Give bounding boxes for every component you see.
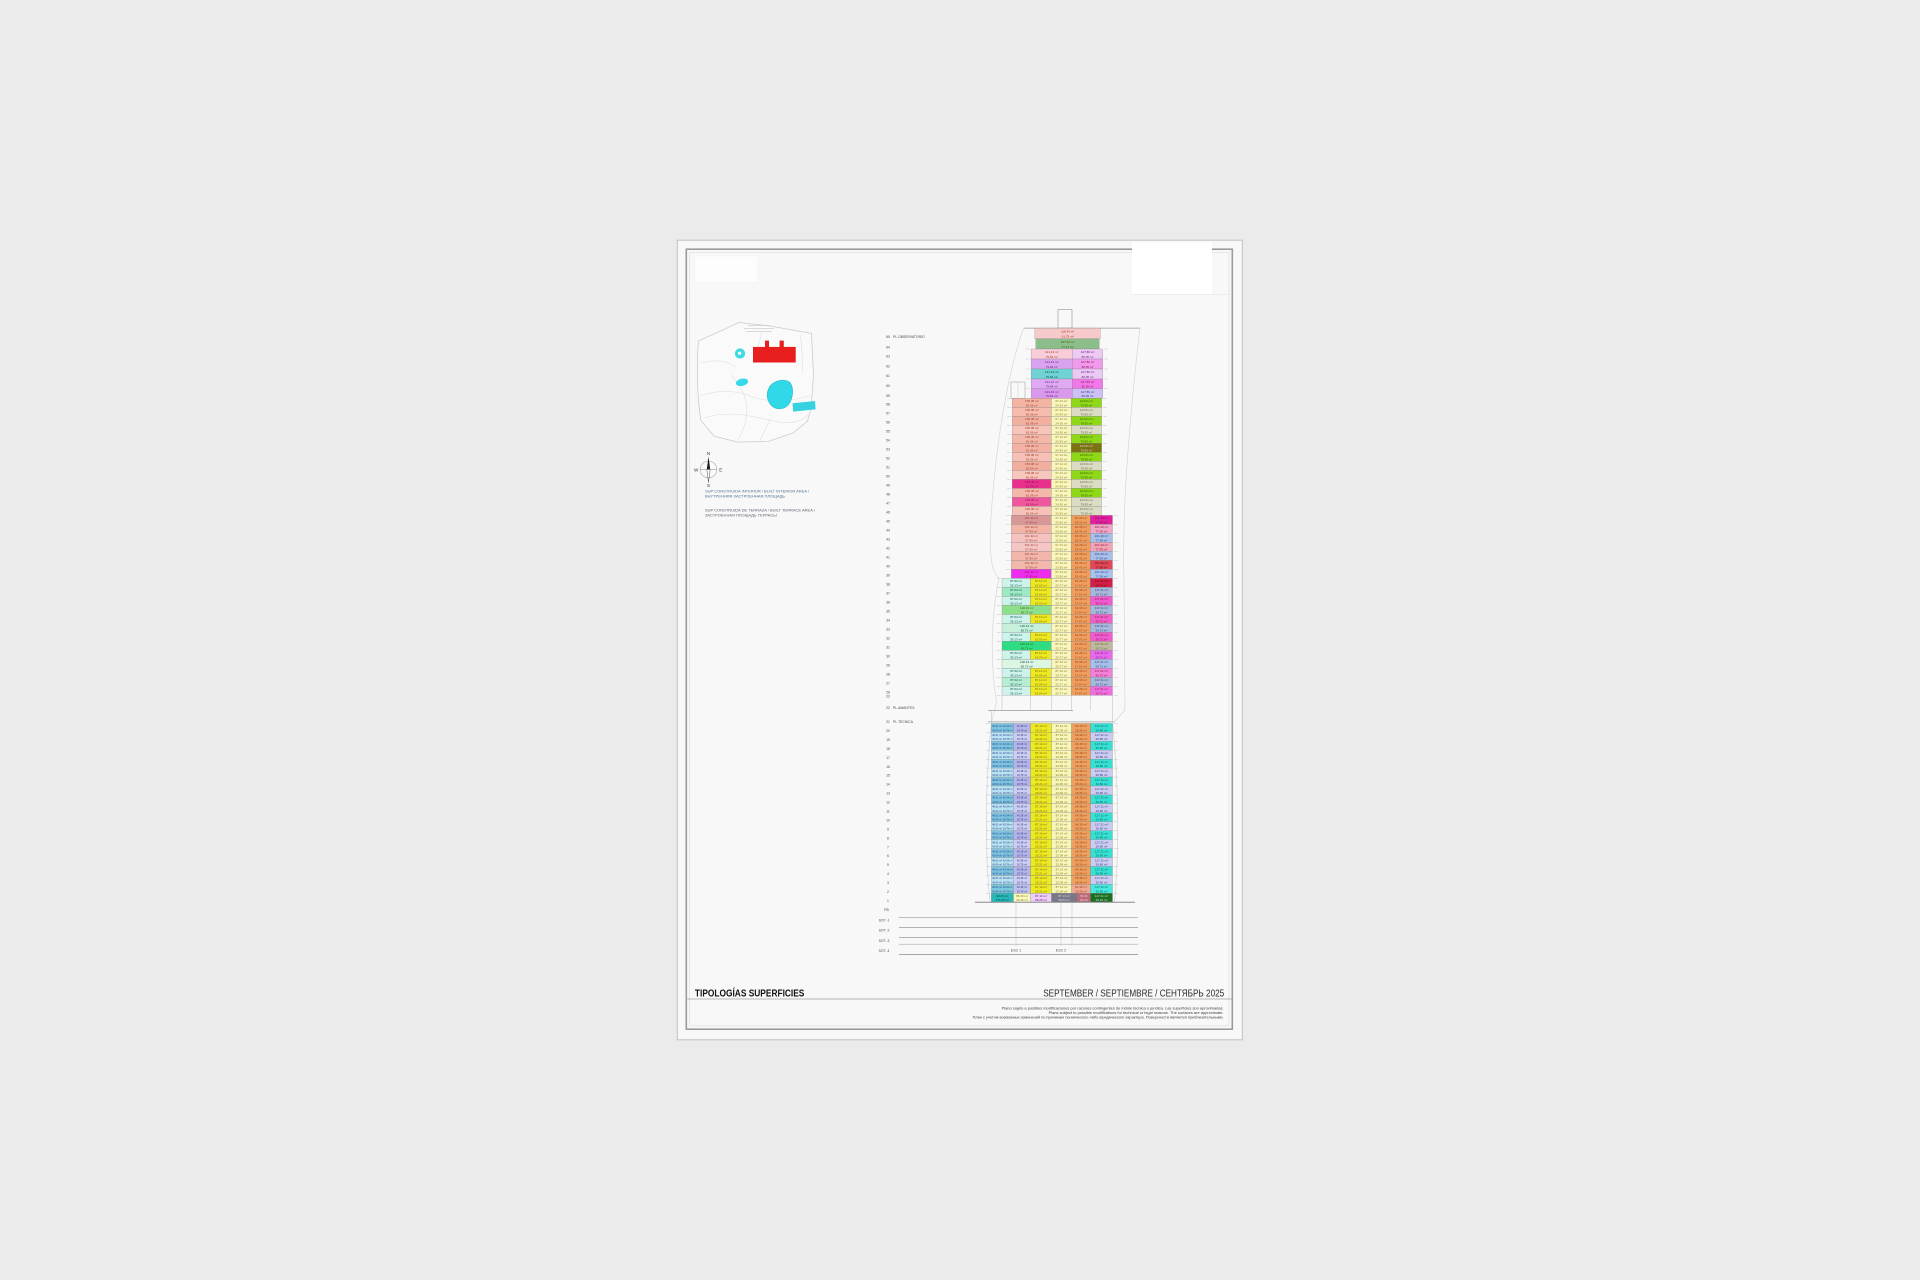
svg-text:121.43 m²: 121.43 m² bbox=[1045, 350, 1059, 354]
svg-text:18.78 m²: 18.78 m² bbox=[1017, 871, 1027, 875]
svg-text:17.67 m²: 17.67 m² bbox=[1075, 673, 1087, 677]
svg-text:55.13 m²: 55.13 m² bbox=[1010, 592, 1022, 596]
svg-text:22.09 m²: 22.09 m² bbox=[1056, 854, 1068, 858]
svg-text:77.99 m²: 77.99 m² bbox=[1095, 556, 1107, 560]
svg-text:46.38 m²: 46.38 m² bbox=[1017, 760, 1027, 764]
svg-text:38: 38 bbox=[886, 582, 890, 586]
svg-text:PL.OBSERVATORIO: PL.OBSERVATORIO bbox=[893, 335, 925, 339]
svg-text:17.67 m²: 17.67 m² bbox=[1075, 628, 1087, 632]
svg-text:79.83 m²: 79.83 m² bbox=[1080, 403, 1092, 407]
svg-text:57.99 m²: 57.99 m² bbox=[1025, 520, 1037, 524]
svg-text:23.21 m²: 23.21 m² bbox=[1035, 782, 1047, 786]
svg-text:18.36 m²: 18.36 m² bbox=[1075, 737, 1087, 741]
svg-text:57: 57 bbox=[886, 411, 890, 415]
svg-text:118.34 m²: 118.34 m² bbox=[1061, 330, 1074, 334]
svg-text:8: 8 bbox=[887, 836, 889, 840]
svg-text:46.38 m²: 46.38 m² bbox=[1017, 885, 1027, 889]
svg-text:29: 29 bbox=[886, 663, 890, 667]
svg-text:23.21 m²: 23.21 m² bbox=[1035, 880, 1047, 884]
svg-text:82.05 m²: 82.05 m² bbox=[1082, 394, 1094, 398]
svg-text:37: 37 bbox=[886, 591, 890, 595]
svg-text:46.61 m² 43.04 m²: 46.61 m² 43.04 m² bbox=[992, 841, 1013, 844]
svg-text:18.36 m²: 18.36 m² bbox=[1075, 836, 1087, 840]
svg-text:26.71 m²: 26.71 m² bbox=[1095, 664, 1107, 668]
svg-text:19.03 m²: 19.03 m² bbox=[1035, 601, 1047, 605]
svg-text:65: 65 bbox=[886, 335, 890, 339]
svg-text:43.04 m² 18.78 m²: 43.04 m² 18.78 m² bbox=[992, 881, 1013, 884]
svg-text:23.21 m²: 23.21 m² bbox=[1035, 737, 1047, 741]
svg-text:79.83 m²: 79.83 m² bbox=[1080, 502, 1092, 506]
svg-text:46.38 m²: 46.38 m² bbox=[1017, 778, 1027, 782]
svg-text:127.86 m²: 127.86 m² bbox=[1081, 390, 1095, 394]
svg-text:18.36 m²: 18.36 m² bbox=[1075, 800, 1087, 804]
svg-text:SOT -2: SOT -2 bbox=[879, 929, 890, 933]
svg-text:26.80 m²: 26.80 m² bbox=[1096, 880, 1108, 884]
svg-text:127.86 m²: 127.86 m² bbox=[1081, 370, 1095, 374]
svg-text:25.77 m²: 25.77 m² bbox=[1055, 592, 1067, 596]
svg-text:79.84 m²: 79.84 m² bbox=[1046, 394, 1058, 398]
svg-text:18.78 m²: 18.78 m² bbox=[1017, 854, 1027, 858]
svg-text:60.72 m²: 60.72 m² bbox=[1021, 646, 1033, 650]
svg-text:18.36 m²: 18.36 m² bbox=[1075, 791, 1087, 795]
svg-text:25.77 m²: 25.77 m² bbox=[1055, 673, 1067, 677]
svg-text:24.36 m²: 24.36 m² bbox=[1055, 439, 1067, 443]
svg-text:23.06 m²: 23.06 m² bbox=[1055, 529, 1067, 533]
svg-text:24.36 m²: 24.36 m² bbox=[1055, 403, 1067, 407]
svg-text:26.71 m²: 26.71 m² bbox=[1095, 610, 1107, 614]
svg-text:18.36 m²: 18.36 m² bbox=[1075, 854, 1087, 858]
svg-text:127.86 m²: 127.86 m² bbox=[1081, 360, 1095, 364]
svg-text:171.05 m²: 171.05 m² bbox=[996, 898, 1010, 902]
svg-text:46.38 m²: 46.38 m² bbox=[1017, 840, 1027, 844]
svg-text:26.80 m²: 26.80 m² bbox=[1096, 764, 1108, 768]
svg-text:64: 64 bbox=[886, 346, 890, 350]
svg-text:18.78 m²: 18.78 m² bbox=[1017, 773, 1027, 777]
svg-text:17.67 m²: 17.67 m² bbox=[1075, 637, 1087, 641]
svg-text:19.03 m²: 19.03 m² bbox=[1035, 682, 1047, 686]
svg-text:26.10 m²: 26.10 m² bbox=[1096, 898, 1108, 902]
svg-text:81.06 m²: 81.06 m² bbox=[1026, 466, 1038, 470]
svg-text:77.99 m²: 77.99 m² bbox=[1095, 574, 1107, 578]
svg-text:18.78 m²: 18.78 m² bbox=[1017, 818, 1027, 822]
svg-text:43.04 m² 18.78 m²: 43.04 m² 18.78 m² bbox=[992, 837, 1013, 840]
svg-text:34: 34 bbox=[886, 618, 890, 622]
svg-text:23.21 m²: 23.21 m² bbox=[1035, 809, 1047, 813]
svg-text:22.09 m²: 22.09 m² bbox=[1056, 818, 1068, 822]
svg-text:18.36 m²: 18.36 m² bbox=[1075, 728, 1087, 732]
svg-text:26.80 m²: 26.80 m² bbox=[1096, 854, 1108, 858]
svg-text:61.75 m²: 61.75 m² bbox=[1062, 335, 1074, 339]
svg-text:57.99 m²: 57.99 m² bbox=[1025, 547, 1037, 551]
svg-text:43.04 m² 18.78 m²: 43.04 m² 18.78 m² bbox=[992, 819, 1013, 822]
svg-text:23.21 m²: 23.21 m² bbox=[1035, 746, 1047, 750]
svg-text:27: 27 bbox=[886, 681, 890, 685]
svg-text:18.41 m²: 18.41 m² bbox=[1075, 556, 1087, 560]
svg-text:26.71 m²: 26.71 m² bbox=[1095, 583, 1107, 587]
svg-text:12: 12 bbox=[886, 801, 890, 805]
svg-text:25.77 m²: 25.77 m² bbox=[1055, 637, 1067, 641]
svg-text:22.09 m²: 22.09 m² bbox=[1056, 836, 1068, 840]
svg-text:23.21 m²: 23.21 m² bbox=[1035, 764, 1047, 768]
svg-text:9: 9 bbox=[887, 827, 889, 831]
svg-text:57.99 m²: 57.99 m² bbox=[1025, 529, 1037, 533]
svg-text:23.21 m²: 23.21 m² bbox=[1035, 889, 1047, 893]
svg-text:50: 50 bbox=[886, 474, 890, 478]
svg-text:55.13 m²: 55.13 m² bbox=[1010, 601, 1022, 605]
svg-text:18.36 m²: 18.36 m² bbox=[1075, 845, 1087, 849]
svg-text:81.06 m²: 81.06 m² bbox=[1026, 457, 1038, 461]
svg-text:18: 18 bbox=[886, 747, 890, 751]
svg-text:63: 63 bbox=[886, 355, 890, 359]
svg-text:18.36 m²: 18.36 m² bbox=[1075, 827, 1087, 831]
svg-text:23.21 m²: 23.21 m² bbox=[1035, 728, 1047, 732]
svg-text:43: 43 bbox=[886, 537, 890, 541]
svg-text:18.36 m²: 18.36 m² bbox=[1075, 818, 1087, 822]
svg-text:19.03 m²: 19.03 m² bbox=[1035, 655, 1047, 659]
svg-text:TIPOLOGÍAS SUPERFICIES: TIPOLOGÍAS SUPERFICIES bbox=[695, 986, 805, 999]
svg-text:43.04 m² 18.78 m²: 43.04 m² 18.78 m² bbox=[992, 872, 1013, 875]
svg-text:26.80 m²: 26.80 m² bbox=[1096, 800, 1108, 804]
svg-text:43.04 m² 18.78 m²: 43.04 m² 18.78 m² bbox=[992, 792, 1013, 795]
svg-text:18.41 m²: 18.41 m² bbox=[1075, 538, 1087, 542]
svg-text:23: 23 bbox=[886, 694, 890, 698]
svg-text:32: 32 bbox=[886, 636, 890, 640]
svg-text:127.86 m²: 127.86 m² bbox=[1081, 380, 1095, 384]
svg-text:81.06 m²: 81.06 m² bbox=[1026, 475, 1038, 479]
svg-text:23.06 m²: 23.06 m² bbox=[1055, 574, 1067, 578]
svg-text:79.83 m²: 79.83 m² bbox=[1080, 475, 1092, 479]
svg-text:18.41 m²: 18.41 m² bbox=[1075, 520, 1087, 524]
svg-text:60: 60 bbox=[886, 384, 890, 388]
svg-text:58: 58 bbox=[886, 402, 890, 406]
svg-text:43.04 m² 18.78 m²: 43.04 m² 18.78 m² bbox=[992, 828, 1013, 831]
svg-text:46.61 m² 43.04 m²: 46.61 m² 43.04 m² bbox=[992, 824, 1013, 827]
svg-text:19.03 m²: 19.03 m² bbox=[1035, 592, 1047, 596]
svg-text:26.71 m²: 26.71 m² bbox=[1095, 601, 1107, 605]
svg-text:82.05 m²: 82.05 m² bbox=[1082, 385, 1094, 389]
svg-text:53: 53 bbox=[886, 447, 890, 451]
svg-text:59: 59 bbox=[886, 394, 890, 398]
svg-text:26.80 m²: 26.80 m² bbox=[1096, 773, 1108, 777]
svg-text:ЗАСТРОЕННАЯ ПЛОЩАДЬ ТЕРРАСЫ: ЗАСТРОЕННАЯ ПЛОЩАДЬ ТЕРРАСЫ bbox=[705, 513, 777, 518]
svg-text:23.21 m²: 23.21 m² bbox=[1035, 827, 1047, 831]
svg-text:237.54 m²: 237.54 m² bbox=[1061, 340, 1075, 344]
svg-text:4: 4 bbox=[887, 872, 889, 876]
svg-text:PL.AMANTES: PL.AMANTES bbox=[893, 706, 915, 710]
svg-text:26.80 m²: 26.80 m² bbox=[1096, 845, 1108, 849]
svg-text:26.80 m²: 26.80 m² bbox=[1096, 889, 1108, 893]
svg-text:26.80 m²: 26.80 m² bbox=[1096, 836, 1108, 840]
svg-text:25.77 m²: 25.77 m² bbox=[1055, 619, 1067, 623]
svg-text:46.61 m² 43.04 m²: 46.61 m² 43.04 m² bbox=[992, 859, 1013, 862]
svg-text:55: 55 bbox=[886, 429, 890, 433]
svg-text:46.38 m²: 46.38 m² bbox=[1017, 849, 1027, 853]
svg-text:46.38 m²: 46.38 m² bbox=[1017, 805, 1027, 809]
svg-text:24.36 m²: 24.36 m² bbox=[1055, 448, 1067, 452]
svg-text:46.61 m² 43.04 m²: 46.61 m² 43.04 m² bbox=[992, 779, 1013, 782]
svg-text:21: 21 bbox=[886, 720, 890, 724]
svg-text:17.67 m²: 17.67 m² bbox=[1075, 610, 1087, 614]
svg-text:25.77 m²: 25.77 m² bbox=[1055, 646, 1067, 650]
svg-text:18.78 m²: 18.78 m² bbox=[1017, 800, 1027, 804]
svg-text:79.84 m²: 79.84 m² bbox=[1046, 385, 1058, 389]
svg-text:46.38 m²: 46.38 m² bbox=[1017, 796, 1027, 800]
svg-text:23.21 m²: 23.21 m² bbox=[1035, 836, 1047, 840]
svg-text:22.09 m²: 22.09 m² bbox=[1056, 845, 1068, 849]
svg-text:57.99 m²: 57.99 m² bbox=[1025, 538, 1037, 542]
svg-text:19.03 m²: 19.03 m² bbox=[1035, 619, 1047, 623]
svg-text:25.77 m²: 25.77 m² bbox=[1055, 682, 1067, 686]
svg-text:29.40 m²: 29.40 m² bbox=[1016, 898, 1028, 902]
svg-text:46.61 m² 43.04 m²: 46.61 m² 43.04 m² bbox=[992, 877, 1013, 880]
svg-text:22.09 m²: 22.09 m² bbox=[1056, 764, 1068, 768]
svg-text:26.80 m²: 26.80 m² bbox=[1096, 737, 1108, 741]
svg-text:E: E bbox=[719, 468, 722, 473]
svg-text:46.61 m² 43.04 m²: 46.61 m² 43.04 m² bbox=[992, 850, 1013, 853]
svg-text:23.06 m²: 23.06 m² bbox=[1055, 565, 1067, 569]
svg-text:26.80 m²: 26.80 m² bbox=[1096, 827, 1108, 831]
svg-text:55.13 m²: 55.13 m² bbox=[1010, 583, 1022, 587]
svg-text:22.09 m²: 22.09 m² bbox=[1056, 809, 1068, 813]
svg-text:43.04 m² 18.78 m²: 43.04 m² 18.78 m² bbox=[992, 810, 1013, 813]
svg-text:43.04 m² 18.78 m²: 43.04 m² 18.78 m² bbox=[992, 729, 1013, 732]
svg-text:24.36 m²: 24.36 m² bbox=[1055, 475, 1067, 479]
svg-text:55.13 m²: 55.13 m² bbox=[1010, 619, 1022, 623]
svg-text:43.04 m² 18.78 m²: 43.04 m² 18.78 m² bbox=[992, 738, 1013, 741]
svg-text:План с учетом возможных измене: План с учетом возможных изменений по при… bbox=[973, 1014, 1224, 1019]
svg-text:49: 49 bbox=[886, 483, 890, 487]
svg-text:18.36 m²: 18.36 m² bbox=[1075, 746, 1087, 750]
svg-text:46.61 m² 43.04 m²: 46.61 m² 43.04 m² bbox=[992, 815, 1013, 818]
svg-text:46.61 m² 43.04 m²: 46.61 m² 43.04 m² bbox=[992, 886, 1013, 889]
svg-text:23.21 m²: 23.21 m² bbox=[1035, 862, 1047, 866]
svg-text:127.86 m²: 127.86 m² bbox=[1081, 350, 1095, 354]
svg-text:79.84 m²: 79.84 m² bbox=[1046, 355, 1058, 359]
svg-text:18.36 m²: 18.36 m² bbox=[1075, 862, 1087, 866]
svg-text:13: 13 bbox=[886, 792, 890, 796]
svg-text:52: 52 bbox=[886, 456, 890, 460]
svg-text:46.61 m² 43.04 m²: 46.61 m² 43.04 m² bbox=[992, 788, 1013, 791]
svg-text:18.36 m²: 18.36 m² bbox=[1075, 889, 1087, 893]
svg-text:81.06 m²: 81.06 m² bbox=[1026, 421, 1038, 425]
svg-text:24.36 m²: 24.36 m² bbox=[1055, 466, 1067, 470]
svg-text:43.04 m² 18.78 m²: 43.04 m² 18.78 m² bbox=[992, 765, 1013, 768]
svg-text:23.21 m²: 23.21 m² bbox=[1035, 800, 1047, 804]
svg-text:26.71 m²: 26.71 m² bbox=[1095, 646, 1107, 650]
svg-text:46.38 m²: 46.38 m² bbox=[1017, 858, 1027, 862]
svg-text:22.09 m²: 22.09 m² bbox=[1056, 871, 1068, 875]
svg-text:26.71 m²: 26.71 m² bbox=[1095, 628, 1107, 632]
svg-text:25.77 m²: 25.77 m² bbox=[1055, 664, 1067, 668]
svg-text:18.36 m²: 18.36 m² bbox=[1075, 809, 1087, 813]
svg-text:62: 62 bbox=[886, 364, 890, 368]
svg-text:41: 41 bbox=[886, 555, 890, 559]
svg-text:57.99 m²: 57.99 m² bbox=[1025, 565, 1037, 569]
svg-text:18.41 m²: 18.41 m² bbox=[1075, 547, 1087, 551]
svg-text:77.99 m²: 77.99 m² bbox=[1095, 538, 1107, 542]
svg-text:26.71 m²: 26.71 m² bbox=[1095, 682, 1107, 686]
svg-text:31: 31 bbox=[886, 645, 890, 649]
svg-text:22.09 m²: 22.09 m² bbox=[1056, 737, 1068, 741]
svg-text:81.06 m²: 81.06 m² bbox=[1026, 484, 1038, 488]
svg-text:43.04 m² 18.78 m²: 43.04 m² 18.78 m² bbox=[992, 846, 1013, 849]
svg-text:77.99 m²: 77.99 m² bbox=[1095, 547, 1107, 551]
svg-text:17.67 m²: 17.67 m² bbox=[1075, 646, 1087, 650]
svg-text:24.36 m²: 24.36 m² bbox=[1055, 511, 1067, 515]
svg-text:43.04 m² 18.78 m²: 43.04 m² 18.78 m² bbox=[992, 756, 1013, 759]
svg-text:79.83 m²: 79.83 m² bbox=[1080, 448, 1092, 452]
svg-text:24.36 m²: 24.36 m² bbox=[1055, 457, 1067, 461]
svg-text:57.99 m²: 57.99 m² bbox=[1025, 556, 1037, 560]
svg-text:23.21 m²: 23.21 m² bbox=[1035, 755, 1047, 759]
svg-text:22.09 m²: 22.09 m² bbox=[1056, 755, 1068, 759]
svg-text:26.80 m²: 26.80 m² bbox=[1096, 728, 1108, 732]
svg-text:82.05 m²: 82.05 m² bbox=[1082, 375, 1094, 379]
svg-text:77.99 m²: 77.99 m² bbox=[1095, 565, 1107, 569]
svg-text:18.78 m²: 18.78 m² bbox=[1017, 836, 1027, 840]
svg-text:18.36 m²: 18.36 m² bbox=[1075, 764, 1087, 768]
svg-text:56: 56 bbox=[886, 420, 890, 424]
svg-text:25.77 m²: 25.77 m² bbox=[1055, 601, 1067, 605]
svg-text:79.83 m²: 79.83 m² bbox=[1080, 484, 1092, 488]
svg-text:SOT -4: SOT -4 bbox=[879, 949, 890, 953]
svg-text:43.04 m² 18.78 m²: 43.04 m² 18.78 m² bbox=[992, 801, 1013, 804]
svg-text:26.80 m²: 26.80 m² bbox=[1096, 755, 1108, 759]
svg-text:22: 22 bbox=[886, 706, 890, 710]
svg-text:18.78 m²: 18.78 m² bbox=[1017, 755, 1027, 759]
svg-text:81.06 m²: 81.06 m² bbox=[1026, 403, 1038, 407]
svg-text:26.80 m²: 26.80 m² bbox=[1096, 782, 1108, 786]
svg-text:79.83 m²: 79.83 m² bbox=[1080, 421, 1092, 425]
svg-text:79.83 m²: 79.83 m² bbox=[1080, 466, 1092, 470]
svg-text:46.38 m²: 46.38 m² bbox=[1017, 769, 1027, 773]
svg-text:23.21 m²: 23.21 m² bbox=[1035, 791, 1047, 795]
svg-text:40: 40 bbox=[886, 564, 890, 568]
svg-text:26.80 m²: 26.80 m² bbox=[1096, 871, 1108, 875]
svg-text:55.13 m²: 55.13 m² bbox=[1010, 655, 1022, 659]
svg-text:18.78 m²: 18.78 m² bbox=[1017, 827, 1027, 831]
svg-text:22.09 m²: 22.09 m² bbox=[1056, 827, 1068, 831]
svg-text:26.71 m²: 26.71 m² bbox=[1095, 619, 1107, 623]
svg-text:18.36 m²: 18.36 m² bbox=[1075, 880, 1087, 884]
svg-text:18.78 m²: 18.78 m² bbox=[1017, 809, 1027, 813]
svg-text:46.38 m²: 46.38 m² bbox=[1017, 733, 1027, 737]
svg-text:18.78 m²: 18.78 m² bbox=[1017, 845, 1027, 849]
svg-text:PL.TECNICA: PL.TECNICA bbox=[893, 720, 914, 724]
svg-text:46.61 m² 43.04 m²: 46.61 m² 43.04 m² bbox=[992, 752, 1013, 755]
svg-text:26.80 m²: 26.80 m² bbox=[1096, 791, 1108, 795]
svg-text:18.41 m²: 18.41 m² bbox=[1075, 529, 1087, 533]
svg-text:18.78 m²: 18.78 m² bbox=[1017, 862, 1027, 866]
svg-text:26.71 m²: 26.71 m² bbox=[1095, 691, 1107, 695]
svg-text:24.36 m²: 24.36 m² bbox=[1055, 421, 1067, 425]
svg-text:18.78 m²: 18.78 m² bbox=[1017, 737, 1027, 741]
svg-text:25.77 m²: 25.77 m² bbox=[1055, 655, 1067, 659]
svg-text:46.61 m² 43.04 m²: 46.61 m² 43.04 m² bbox=[992, 806, 1013, 809]
svg-text:18.78 m²: 18.78 m² bbox=[1017, 764, 1027, 768]
svg-text:55.13 m²: 55.13 m² bbox=[1010, 691, 1022, 695]
svg-text:26.80 m²: 26.80 m² bbox=[1096, 862, 1108, 866]
svg-text:25.77 m²: 25.77 m² bbox=[1055, 610, 1067, 614]
svg-text:17.67 m²: 17.67 m² bbox=[1075, 691, 1087, 695]
svg-text:23.06 m²: 23.06 m² bbox=[1055, 538, 1067, 542]
svg-text:24.36 m²: 24.36 m² bbox=[1055, 412, 1067, 416]
svg-text:98.03 m²: 98.03 m² bbox=[1058, 898, 1070, 902]
svg-text:10: 10 bbox=[886, 819, 890, 823]
svg-text:24.36 m²: 24.36 m² bbox=[1055, 484, 1067, 488]
svg-text:ESC 1: ESC 1 bbox=[1011, 949, 1021, 953]
svg-text:77.27 m²: 77.27 m² bbox=[1062, 345, 1074, 349]
svg-text:46.38 m²: 46.38 m² bbox=[1017, 876, 1027, 880]
svg-text:46.38 m²: 46.38 m² bbox=[1017, 832, 1027, 836]
svg-text:3: 3 bbox=[887, 881, 889, 885]
svg-text:26.71 m²: 26.71 m² bbox=[1095, 637, 1107, 641]
svg-text:46.61 m² 43.04 m²: 46.61 m² 43.04 m² bbox=[992, 868, 1013, 871]
svg-text:17.67 m²: 17.67 m² bbox=[1075, 583, 1087, 587]
svg-text:19.03 m²: 19.03 m² bbox=[1035, 583, 1047, 587]
svg-text:82.05 m²: 82.05 m² bbox=[1082, 365, 1094, 369]
svg-text:SEPTEMBER / SEPTIEMBRE / СЕНТЯ: SEPTEMBER / SEPTIEMBRE / СЕНТЯБРЬ 2025 bbox=[1043, 988, 1224, 999]
svg-text:60.72 m²: 60.72 m² bbox=[1021, 628, 1033, 632]
svg-text:121.43 m²: 121.43 m² bbox=[1045, 380, 1059, 384]
svg-text:43.04 m² 18.78 m²: 43.04 m² 18.78 m² bbox=[992, 863, 1013, 866]
svg-text:17: 17 bbox=[886, 756, 890, 760]
svg-text:46.61 m² 43.04 m²: 46.61 m² 43.04 m² bbox=[992, 725, 1013, 728]
svg-text:60.72 m²: 60.72 m² bbox=[1021, 610, 1033, 614]
svg-text:18.78 m²: 18.78 m² bbox=[1017, 880, 1027, 884]
svg-text:15: 15 bbox=[886, 774, 890, 778]
svg-text:25.77 m²: 25.77 m² bbox=[1055, 691, 1067, 695]
svg-text:43.04 m² 18.78 m²: 43.04 m² 18.78 m² bbox=[992, 890, 1013, 893]
svg-text:11: 11 bbox=[886, 810, 890, 814]
svg-text:55.13 m²: 55.13 m² bbox=[1010, 673, 1022, 677]
svg-text:18.36 m²: 18.36 m² bbox=[1075, 782, 1087, 786]
svg-text:81.06 m²: 81.06 m² bbox=[1026, 412, 1038, 416]
svg-text:SOT -3: SOT -3 bbox=[879, 939, 890, 943]
svg-text:26.80 m²: 26.80 m² bbox=[1096, 809, 1108, 813]
svg-text:45: 45 bbox=[886, 519, 890, 523]
svg-text:23.06 m²: 23.06 m² bbox=[1055, 520, 1067, 524]
svg-text:N: N bbox=[707, 451, 710, 456]
svg-text:18.36 m²: 18.36 m² bbox=[1075, 773, 1087, 777]
svg-text:1: 1 bbox=[887, 899, 889, 903]
svg-text:24.36 m²: 24.36 m² bbox=[1055, 493, 1067, 497]
svg-text:81.06 m²: 81.06 m² bbox=[1026, 493, 1038, 497]
svg-text:23.06 m²: 23.06 m² bbox=[1055, 556, 1067, 560]
svg-text:79.83 m²: 79.83 m² bbox=[1080, 430, 1092, 434]
svg-text:60.72 m²: 60.72 m² bbox=[1021, 664, 1033, 668]
svg-text:17.67 m²: 17.67 m² bbox=[1075, 601, 1087, 605]
svg-text:46.38 m²: 46.38 m² bbox=[1017, 867, 1027, 871]
svg-text:PB: PB bbox=[884, 908, 889, 912]
svg-text:79.83 m²: 79.83 m² bbox=[1080, 457, 1092, 461]
svg-text:46.61 m² 43.04 m²: 46.61 m² 43.04 m² bbox=[992, 770, 1013, 773]
svg-text:W: W bbox=[694, 467, 699, 472]
svg-text:30: 30 bbox=[886, 654, 890, 658]
svg-text:17.67 m²: 17.67 m² bbox=[1075, 682, 1087, 686]
svg-text:5: 5 bbox=[887, 863, 889, 867]
svg-text:79.84 m²: 79.84 m² bbox=[1046, 375, 1058, 379]
svg-text:55.13 m²: 55.13 m² bbox=[1010, 637, 1022, 641]
svg-text:24.36 m²: 24.36 m² bbox=[1055, 502, 1067, 506]
svg-text:18.41 m²: 18.41 m² bbox=[1075, 574, 1087, 578]
svg-text:18.78 m²: 18.78 m² bbox=[1017, 746, 1027, 750]
svg-text:24.36 m²: 24.36 m² bbox=[1055, 430, 1067, 434]
svg-text:ВНУТРЕННЯЯ ЗАСТРОЕННАЯ ПЛОЩАД: ВНУТРЕННЯЯ ЗАСТРОЕННАЯ ПЛОЩАДЬ bbox=[705, 494, 785, 499]
svg-text:22.09 m²: 22.09 m² bbox=[1056, 728, 1068, 732]
svg-text:23.21 m²: 23.21 m² bbox=[1035, 871, 1047, 875]
svg-text:44: 44 bbox=[886, 528, 890, 532]
